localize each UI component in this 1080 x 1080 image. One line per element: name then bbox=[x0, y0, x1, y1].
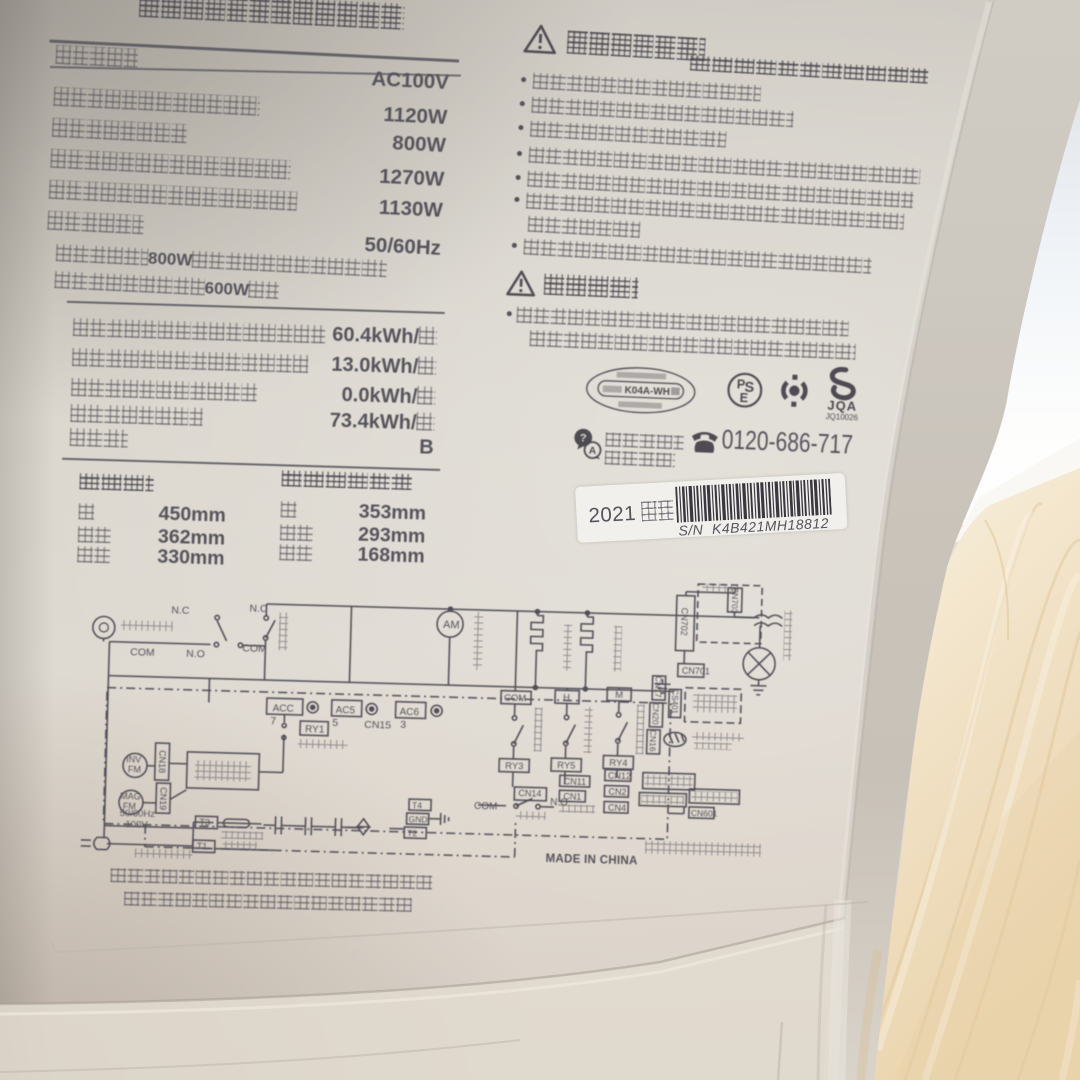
svg-text:5: 5 bbox=[332, 717, 338, 729]
svg-text:N.C: N.C bbox=[249, 603, 268, 616]
svg-text:CN18: CN18 bbox=[157, 750, 168, 773]
svg-text:MAG: MAG bbox=[120, 791, 141, 802]
svg-text:AM: AM bbox=[443, 619, 460, 631]
svg-text:RY4: RY4 bbox=[609, 758, 628, 770]
svg-text:AC6: AC6 bbox=[399, 707, 419, 719]
svg-text:M: M bbox=[615, 690, 623, 701]
svg-text:CN1: CN1 bbox=[563, 791, 581, 801]
svg-text:RY3: RY3 bbox=[505, 761, 524, 773]
svg-text:RY1: RY1 bbox=[305, 724, 325, 736]
svg-text:FM: FM bbox=[128, 764, 141, 774]
svg-text:MADE IN CHINA: MADE IN CHINA bbox=[545, 853, 637, 868]
svg-text:CN19: CN19 bbox=[158, 787, 169, 810]
svg-text:E: E bbox=[739, 391, 748, 405]
svg-text:CN11: CN11 bbox=[564, 776, 587, 787]
svg-text:CN4: CN4 bbox=[608, 803, 626, 813]
svg-text:T2: T2 bbox=[407, 828, 417, 838]
svg-text:?: ? bbox=[580, 433, 587, 445]
svg-text:CN16: CN16 bbox=[648, 730, 659, 752]
svg-text:CN14: CN14 bbox=[518, 788, 541, 799]
svg-text:N.C: N.C bbox=[171, 604, 190, 617]
svg-text:CN2: CN2 bbox=[608, 787, 626, 797]
svg-text:CN17: CN17 bbox=[653, 676, 664, 698]
svg-text:A: A bbox=[589, 446, 597, 457]
svg-text:COM: COM bbox=[130, 646, 155, 659]
svg-text:T4: T4 bbox=[412, 800, 422, 810]
svg-text:CN702: CN702 bbox=[679, 608, 690, 636]
svg-text:CS401: CS401 bbox=[670, 689, 680, 714]
svg-text:CN12: CN12 bbox=[608, 771, 631, 782]
svg-text:3: 3 bbox=[400, 719, 406, 731]
svg-text:JQ10026: JQ10026 bbox=[825, 412, 858, 422]
svg-text:CN15: CN15 bbox=[364, 719, 391, 732]
svg-text:T1: T1 bbox=[197, 841, 208, 851]
svg-text:100V: 100V bbox=[125, 819, 148, 831]
svg-text:CN601: CN601 bbox=[691, 808, 718, 819]
svg-text:CN20: CN20 bbox=[650, 703, 661, 725]
svg-text:H: H bbox=[563, 692, 570, 703]
svg-text:COM: COM bbox=[474, 801, 498, 813]
svg-text:COM: COM bbox=[242, 642, 267, 655]
svg-text:COM: COM bbox=[504, 693, 527, 705]
svg-text:K04A-WH: K04A-WH bbox=[624, 385, 670, 398]
svg-text:N.O: N.O bbox=[186, 648, 205, 661]
svg-text:RY5: RY5 bbox=[557, 760, 576, 772]
svg-text:7: 7 bbox=[270, 715, 276, 727]
svg-text:INV: INV bbox=[126, 754, 141, 764]
svg-text:CN701: CN701 bbox=[682, 666, 710, 677]
svg-text:GND: GND bbox=[408, 814, 427, 825]
svg-text:CN703: CN703 bbox=[729, 587, 740, 614]
svg-text:AC5: AC5 bbox=[335, 705, 355, 717]
svg-text:ACC: ACC bbox=[273, 703, 294, 715]
svg-text:T3: T3 bbox=[199, 817, 210, 827]
